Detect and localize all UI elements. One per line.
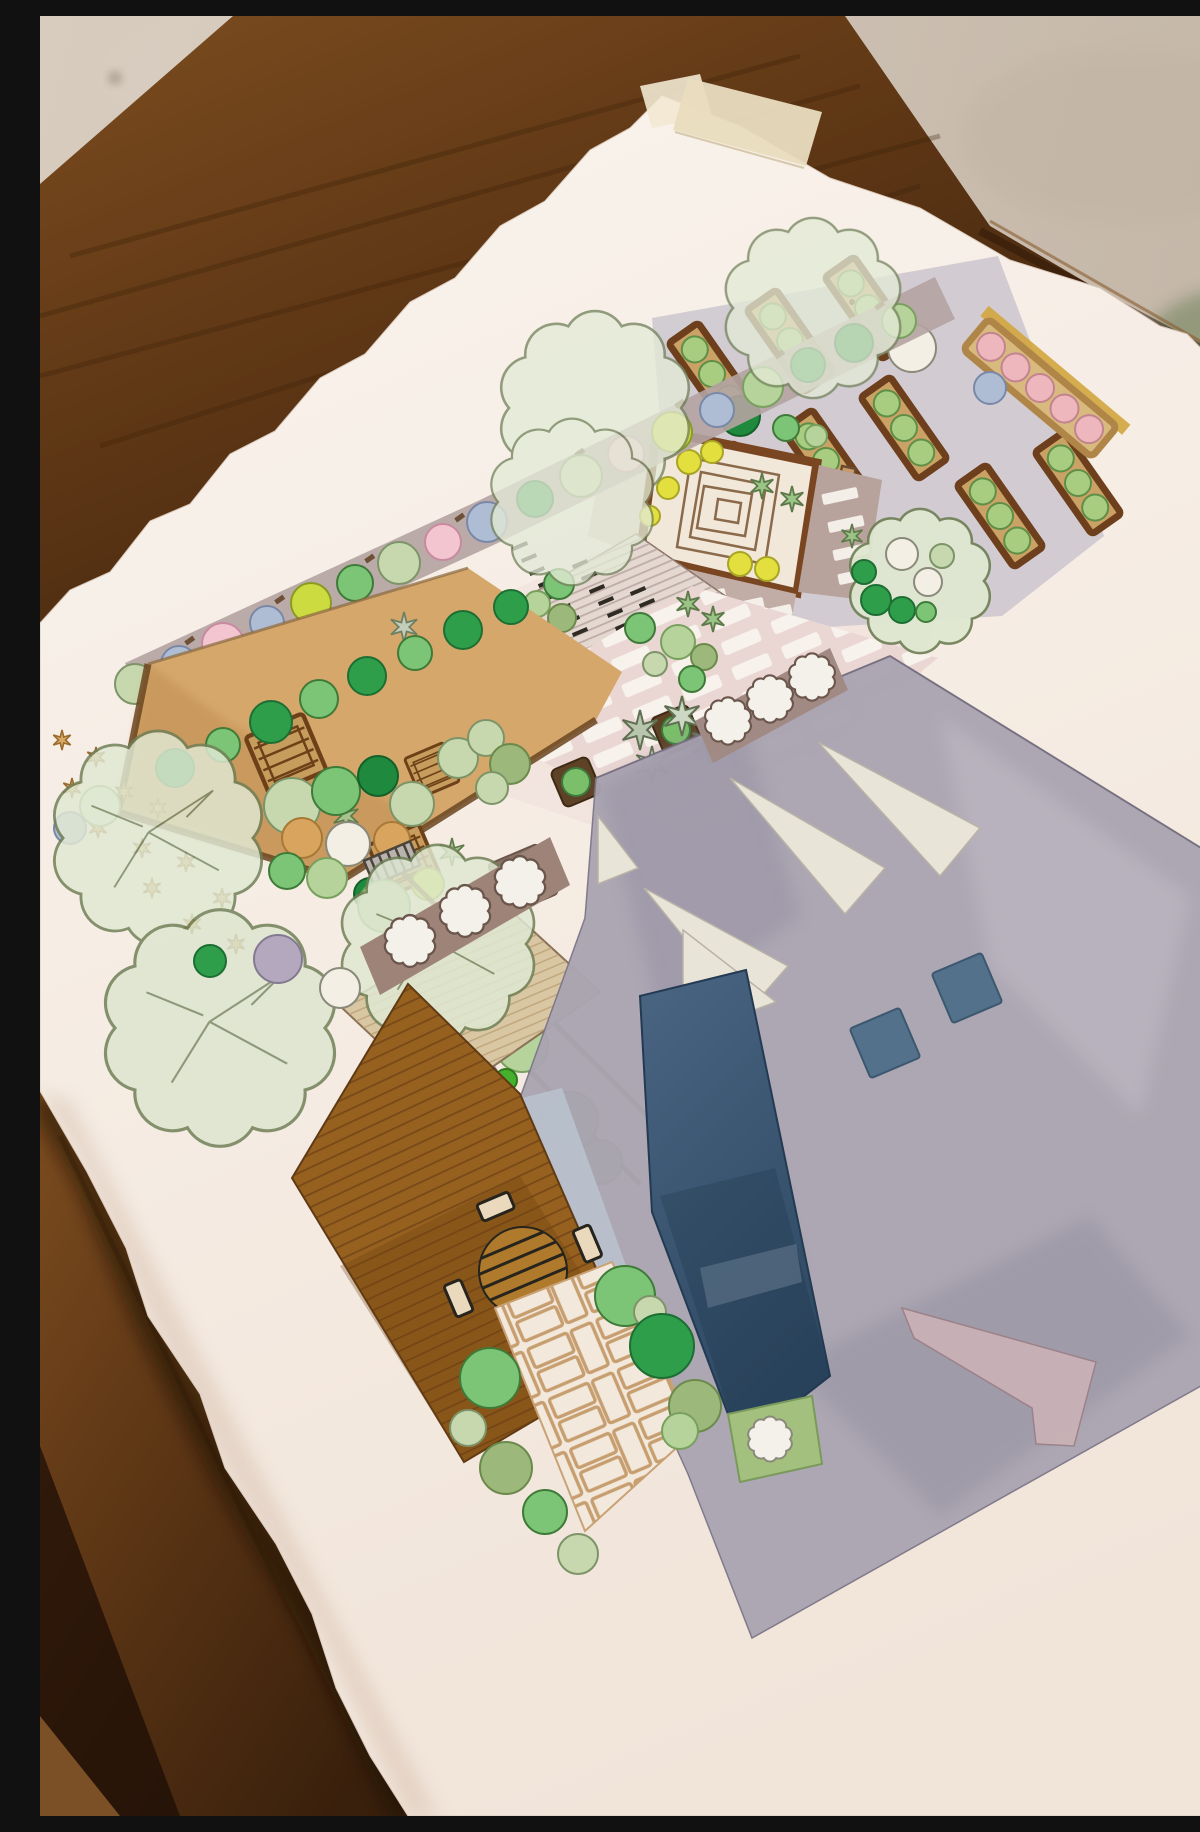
photograph: Concrete floor Dark walnut table Waterco… <box>40 16 1200 1816</box>
